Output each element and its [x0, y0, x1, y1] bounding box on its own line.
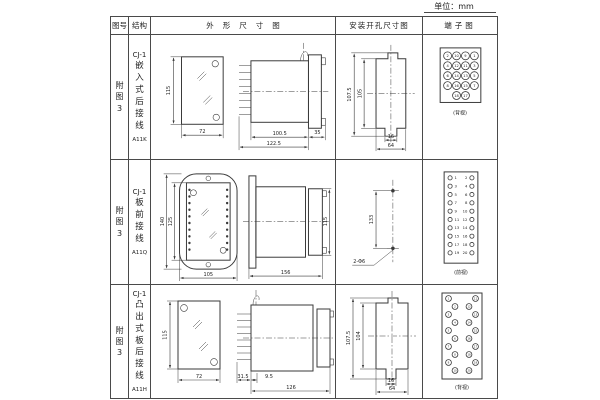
- series-label: CJ-1: [133, 188, 147, 196]
- svg-text:16: 16: [467, 336, 471, 340]
- svg-text:16: 16: [463, 235, 468, 239]
- fig-no-label: 附图3: [114, 205, 125, 239]
- terminal-pins: [237, 314, 251, 360]
- svg-text:8: 8: [446, 84, 449, 88]
- fig-no-cell-a11k: 附图3: [111, 35, 129, 160]
- dim-inner-h: 125: [168, 217, 174, 226]
- svg-text:5: 5: [455, 193, 458, 197]
- series-label: CJ-1: [133, 290, 147, 298]
- dim-hole-pitch: 133: [369, 215, 375, 224]
- model-label: A11Q: [132, 250, 147, 256]
- svg-text:8: 8: [465, 201, 468, 205]
- mirror-marks: [201, 209, 216, 239]
- svg-text:10: 10: [454, 54, 459, 58]
- svg-text:7: 7: [473, 84, 475, 88]
- dim-inner-h: 105: [357, 89, 363, 98]
- svg-text:5: 5: [448, 328, 450, 332]
- unit-underline: [424, 12, 496, 13]
- svg-text:18: 18: [463, 243, 468, 247]
- outline-drawing-a11h: 115 72 31.5 9.5: [151, 285, 336, 398]
- svg-text:11: 11: [455, 218, 460, 222]
- dim-length: 126: [286, 385, 296, 391]
- fig-no-cell-a11q: 附图3: [111, 160, 129, 285]
- svg-text:6: 6: [446, 74, 449, 78]
- dim-width: 72: [199, 129, 205, 135]
- install-cell-a11q: 133 2-Φ6: [336, 160, 423, 285]
- dim-width: 105: [203, 272, 212, 278]
- svg-text:8: 8: [454, 352, 456, 356]
- svg-text:20: 20: [467, 368, 471, 372]
- svg-text:1: 1: [455, 176, 458, 180]
- svg-text:1: 1: [473, 54, 475, 58]
- svg-text:1: 1: [448, 296, 450, 300]
- series-label: CJ-1: [133, 51, 147, 59]
- structure-name: 嵌入式后接线: [134, 61, 146, 132]
- dim-body: 100.5: [272, 131, 286, 137]
- dim-outer-h: 140: [160, 217, 166, 226]
- svg-text:15: 15: [463, 84, 468, 88]
- outline-drawing-a11q: 140 125 105 156 115: [151, 160, 336, 284]
- dim-width: 72: [195, 374, 201, 380]
- svg-text:12: 12: [463, 218, 468, 222]
- header-outline: 外形尺寸图: [151, 17, 336, 35]
- structure-cell-a11k: CJ-1 嵌入式后接线 A11K: [129, 35, 151, 160]
- terminal-diagram-a11h: 1234567891011121314151617181920 (背视): [423, 285, 497, 398]
- svg-text:11: 11: [463, 64, 468, 68]
- svg-text:20: 20: [463, 251, 468, 255]
- terminal-circles-back-view: 210914121136141358161571817: [444, 52, 479, 100]
- svg-text:3: 3: [455, 185, 458, 189]
- svg-text:7: 7: [448, 344, 450, 348]
- header-fig-no: 图号: [111, 17, 129, 35]
- install-cell-a11h: 107.5 104 16 64: [336, 285, 423, 398]
- terminal-cell-a11k: 210914121136141358161571817 (背视): [423, 35, 497, 160]
- fig-no-cell-a11h: 附图3: [111, 285, 129, 398]
- outline-cell-a11k: 115 72 100.5 35 122.5: [151, 35, 336, 160]
- svg-text:4: 4: [465, 185, 468, 189]
- header-terminal: 端子图: [423, 17, 497, 35]
- svg-text:10: 10: [463, 210, 468, 214]
- svg-text:19: 19: [455, 251, 460, 255]
- terminal-caption: (背视): [455, 384, 469, 391]
- lift-hook: [300, 52, 307, 61]
- svg-text:6: 6: [465, 193, 468, 197]
- install-drawing-a11k: 107.5 105 16 64: [336, 35, 423, 159]
- svg-text:12: 12: [454, 64, 459, 68]
- svg-text:13: 13: [463, 74, 468, 78]
- svg-text:10: 10: [453, 368, 457, 372]
- svg-text:9: 9: [455, 210, 458, 214]
- svg-text:17: 17: [474, 344, 478, 348]
- outline-drawing-a11k: 115 72 100.5 35 122.5: [151, 35, 336, 159]
- dim-outer-w: 64: [387, 143, 393, 149]
- structure-cell-a11q: CJ-1 板前接线 A11Q: [129, 160, 151, 285]
- svg-text:18: 18: [467, 352, 471, 356]
- model-label: A11H: [132, 387, 147, 393]
- header-structure: 结构: [129, 17, 151, 35]
- svg-text:15: 15: [474, 328, 478, 332]
- mirror-marks: [193, 320, 208, 351]
- dim-flange: 35: [314, 130, 320, 136]
- svg-text:5: 5: [473, 74, 475, 78]
- svg-text:17: 17: [455, 243, 460, 247]
- dim-side-h: 115: [322, 217, 328, 226]
- svg-text:13: 13: [474, 312, 478, 316]
- mirror-marks: [197, 72, 212, 105]
- svg-text:19: 19: [474, 360, 478, 364]
- structure-cell-a11h: CJ-1 凸出式板后接线 A11H: [129, 285, 151, 398]
- dim-outer-h: 107.5: [346, 331, 352, 345]
- dim-height: 115: [162, 330, 168, 340]
- dim-length: 156: [280, 270, 289, 276]
- dim-outer-w: 64: [388, 386, 394, 392]
- dim-outer-h: 107.5: [347, 87, 353, 101]
- svg-text:7: 7: [455, 201, 458, 205]
- svg-text:12: 12: [467, 304, 471, 308]
- outline-cell-a11h: 115 72 31.5 9.5: [151, 285, 336, 398]
- svg-text:4: 4: [454, 320, 456, 324]
- install-drawing-a11q: 133 2-Φ6: [336, 160, 423, 284]
- datasheet-page: 单位：mm 图号 结构 外形尺寸图 安装开孔尺寸图 端子图 附图3 CJ-1 嵌…: [0, 0, 600, 400]
- dim-total: 122.5: [266, 141, 280, 147]
- terminal-circles-back-view: 1234567891011121314151617181920: [446, 296, 479, 374]
- unit-label: 单位：mm: [412, 1, 496, 12]
- svg-text:2: 2: [465, 176, 468, 180]
- dim-slot-w: 16: [387, 134, 393, 140]
- svg-text:17: 17: [463, 94, 468, 98]
- terminal-circles-front-view: 1357911131517192468101214161820: [448, 176, 474, 255]
- svg-text:16: 16: [454, 84, 459, 88]
- structure-name: 凸出式板后接线: [134, 300, 146, 383]
- terminal-cell-a11h: 1234567891011121314151617181920 (背视): [423, 285, 497, 398]
- terminal-diagram-a11q: 1357911131517192468101214161820 (前视): [423, 160, 497, 284]
- dimension-table: 图号 结构 外形尺寸图 安装开孔尺寸图 端子图 附图3 CJ-1 嵌入式后接线 …: [110, 16, 498, 399]
- model-label: A11K: [132, 137, 146, 143]
- svg-text:14: 14: [467, 320, 471, 324]
- svg-text:2: 2: [446, 54, 448, 58]
- svg-text:3: 3: [448, 312, 450, 316]
- svg-text:2: 2: [454, 304, 456, 308]
- install-cell-a11k: 107.5 105 16 64: [336, 35, 423, 160]
- header-install: 安装开孔尺寸图: [336, 17, 423, 35]
- terminal-caption: (背视): [453, 109, 467, 116]
- svg-text:6: 6: [454, 336, 456, 340]
- svg-text:13: 13: [455, 226, 460, 230]
- structure-name: 板前接线: [134, 198, 146, 246]
- hole-spec-label: 2-Φ6: [353, 259, 365, 265]
- dim-slot-w: 16: [387, 378, 393, 384]
- fig-no-label: 附图3: [114, 80, 125, 114]
- svg-text:15: 15: [455, 235, 460, 239]
- fig-no-label: 附图3: [114, 325, 125, 359]
- install-drawing-a11h: 107.5 104 16 64: [336, 285, 423, 398]
- dim-inner-h: 104: [356, 331, 362, 341]
- svg-text:9: 9: [464, 54, 467, 58]
- outline-cell-a11q: 140 125 105 156 115: [151, 160, 336, 285]
- terminal-caption: (前视): [454, 269, 468, 276]
- svg-text:9: 9: [448, 360, 450, 364]
- svg-text:14: 14: [463, 226, 468, 230]
- dim-height: 115: [166, 86, 172, 95]
- terminal-cell-a11q: 1357911131517192468101214161820 (前视): [423, 160, 497, 285]
- terminal-pins: [239, 66, 251, 115]
- svg-text:3: 3: [473, 64, 475, 68]
- svg-text:14: 14: [454, 74, 459, 78]
- terminal-diagram-a11k: 210914121136141358161571817 (背视): [423, 35, 497, 159]
- dim-stub: 9.5: [265, 374, 273, 380]
- svg-text:18: 18: [454, 94, 459, 98]
- svg-text:4: 4: [446, 64, 449, 68]
- svg-text:11: 11: [474, 296, 478, 300]
- dim-pins: 31.5: [237, 374, 248, 380]
